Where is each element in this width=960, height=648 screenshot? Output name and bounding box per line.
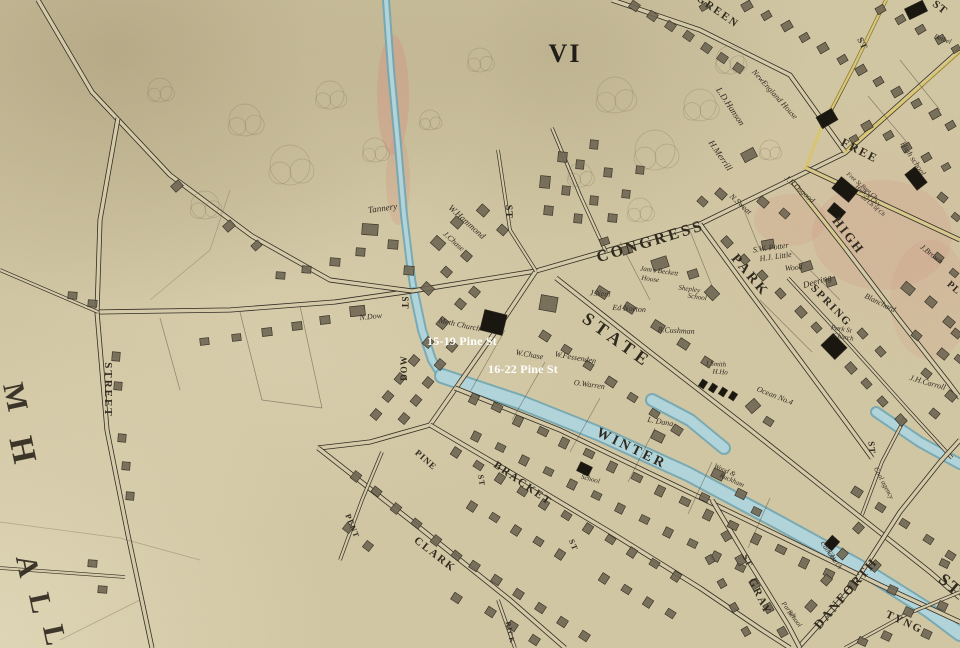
paper-grain-texture xyxy=(0,0,960,648)
annotation-16-22-pine-st: 16-22 Pine St xyxy=(488,362,558,377)
historic-map: CONGRESSSTATEPARKHIGHSPRINGFREEGREENWINT… xyxy=(0,0,960,648)
annotation-15-19-pine-st: 15-19 Pine St xyxy=(427,334,497,349)
map-canvas: CONGRESSSTATEPARKHIGHSPRINGFREEGREENWINT… xyxy=(0,0,960,648)
